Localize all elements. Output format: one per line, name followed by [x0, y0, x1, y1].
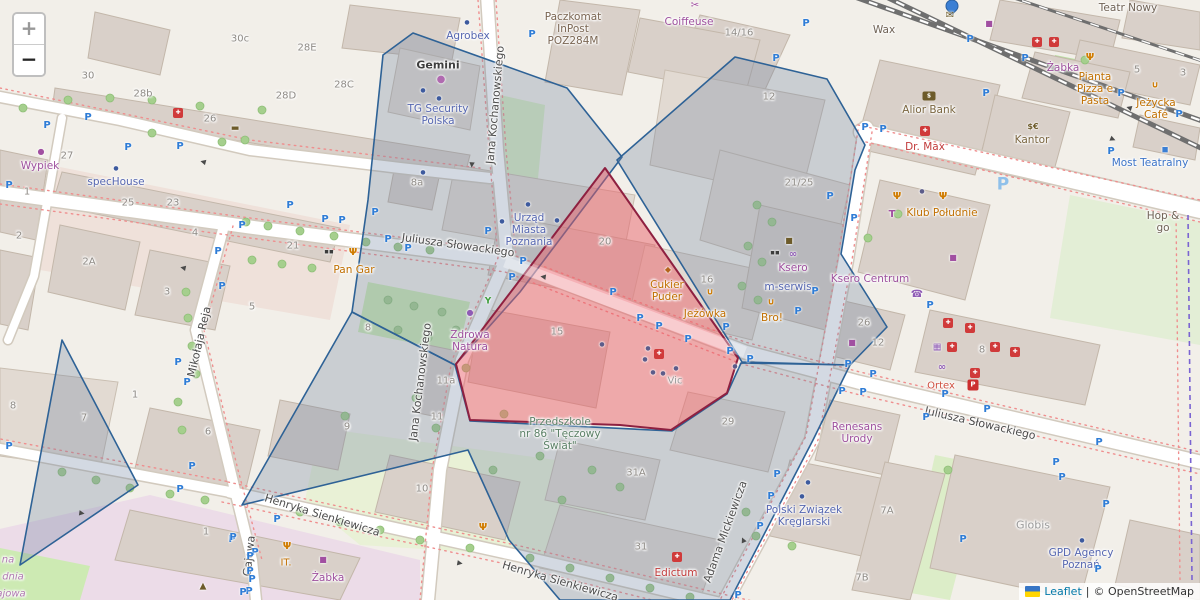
- tree-icon: [296, 227, 304, 235]
- zoom-control[interactable]: + −: [12, 12, 46, 77]
- tree-icon: [178, 426, 186, 434]
- tree-icon: [1081, 56, 1089, 64]
- tree-icon: [218, 138, 226, 146]
- tree-icon: [278, 260, 286, 268]
- tree-icon: [864, 234, 872, 242]
- tree-icon: [376, 526, 384, 534]
- leaflet-link[interactable]: Leaflet: [1044, 585, 1081, 598]
- tree-icon: [192, 370, 200, 378]
- tree-icon: [308, 264, 316, 272]
- tree-icon: [242, 218, 250, 226]
- tree-icon: [258, 106, 266, 114]
- tree-icon: [184, 314, 192, 322]
- map-tiles: [0, 0, 1200, 600]
- tree-icon: [201, 496, 209, 504]
- tree-icon: [182, 288, 190, 296]
- tree-icon: [196, 102, 204, 110]
- tree-icon: [336, 518, 344, 526]
- tree-icon: [264, 222, 272, 230]
- tree-icon: [241, 136, 249, 144]
- tree-icon: [416, 536, 424, 544]
- tree-icon: [248, 256, 256, 264]
- tree-icon: [148, 96, 156, 104]
- tree-icon: [330, 232, 338, 240]
- tree-icon: [944, 466, 952, 474]
- tree-icon: [466, 544, 474, 552]
- tree-icon: [894, 210, 902, 218]
- tree-icon: [174, 398, 182, 406]
- tree-icon: [19, 104, 27, 112]
- tree-icon: [296, 508, 304, 516]
- tree-icon: [166, 490, 174, 498]
- tree-icon: [188, 342, 196, 350]
- osm-link[interactable]: © OpenStreetMap: [1093, 585, 1194, 598]
- zoom-out-button[interactable]: −: [14, 45, 44, 75]
- zoom-in-button[interactable]: +: [14, 14, 44, 45]
- tree-icon: [106, 94, 114, 102]
- tree-icon: [788, 542, 796, 550]
- tree-icon: [64, 96, 72, 104]
- ukraine-flag-icon: [1025, 586, 1040, 597]
- attribution-bar: Leaflet | © OpenStreetMap: [1019, 583, 1200, 600]
- map-canvas[interactable]: Juliusza SłowackiegoJuliusza Słowackiego…: [0, 0, 1200, 600]
- tree-icon: [148, 129, 156, 137]
- attribution-separator: |: [1086, 585, 1090, 598]
